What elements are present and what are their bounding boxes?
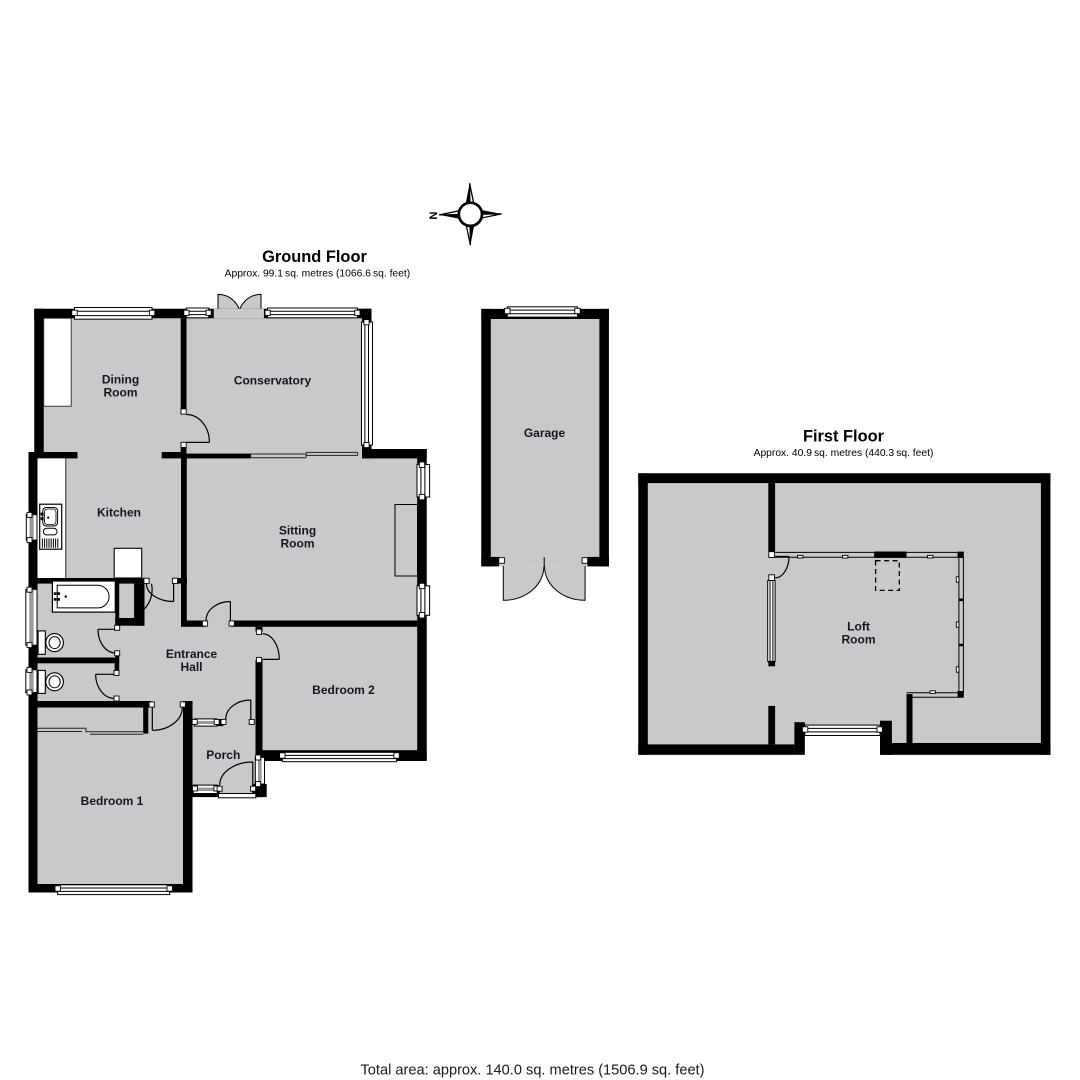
svg-text:Garage: Garage <box>524 426 566 440</box>
svg-text:N: N <box>427 212 439 220</box>
svg-text:Loft: Loft <box>847 620 870 634</box>
svg-text:Approx. 99.1 sq. metres (1066.: Approx. 99.1 sq. metres (1066.6 sq. feet… <box>225 269 411 280</box>
svg-text:Entrance: Entrance <box>166 647 218 661</box>
svg-text:First Floor: First Floor <box>803 428 885 446</box>
svg-text:Room: Room <box>842 633 876 647</box>
svg-text:Hall: Hall <box>180 660 202 674</box>
svg-text:Ground Floor: Ground Floor <box>262 248 367 266</box>
svg-text:Porch: Porch <box>206 748 240 762</box>
svg-text:Dining: Dining <box>102 373 139 387</box>
svg-text:Bedroom 1: Bedroom 1 <box>81 794 144 808</box>
svg-text:Approx. 40.9 sq. metres (440.3: Approx. 40.9 sq. metres (440.3 sq. feet) <box>754 448 934 459</box>
svg-text:Room: Room <box>281 537 315 551</box>
svg-text:Conservatory: Conservatory <box>234 374 312 388</box>
svg-text:Bedroom 2: Bedroom 2 <box>312 683 375 697</box>
svg-text:Room: Room <box>104 386 138 400</box>
svg-text:Kitchen: Kitchen <box>97 506 141 520</box>
svg-text:Total area: approx. 140.0 sq.: Total area: approx. 140.0 sq. metres (15… <box>361 1063 705 1079</box>
svg-text:Sitting: Sitting <box>279 524 316 538</box>
